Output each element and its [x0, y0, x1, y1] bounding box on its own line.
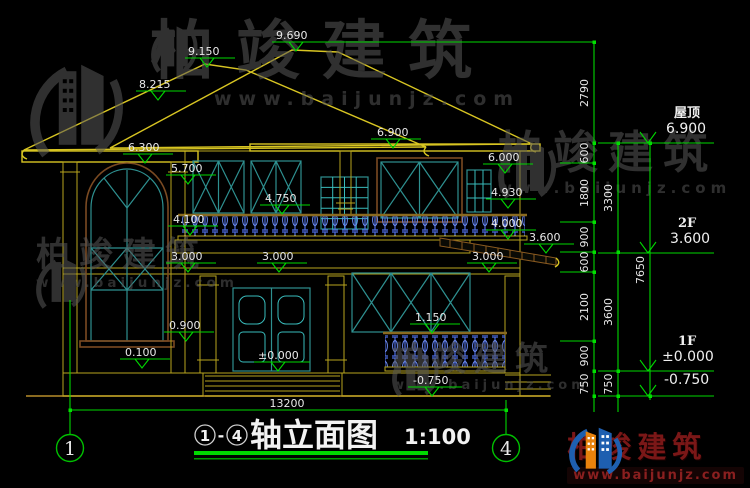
svg-text:屋顶: 屋顶 — [674, 106, 700, 121]
dim-value: 1800 — [578, 179, 591, 207]
svg-text:4.000: 4.000 — [491, 217, 523, 230]
marker-sill-1f: 0.900 — [164, 319, 214, 341]
title-scale: 1:100 — [404, 425, 471, 449]
marker-plinth-top: 0.100 — [120, 346, 170, 368]
elevation-markers: 9.690 9.150 8.215 6.900 6.300 5.700 6.00… — [120, 29, 574, 396]
dimension-lines — [70, 42, 650, 434]
svg-text:8.215: 8.215 — [139, 78, 171, 91]
svg-text:6.900: 6.900 — [377, 126, 409, 139]
svg-text:6.300: 6.300 — [128, 141, 160, 154]
title-underline-thin — [194, 458, 428, 460]
marker-window-top-2f: 6.000 — [483, 151, 533, 173]
svg-text:2F: 2F — [678, 216, 697, 231]
dim-value: 7650 — [634, 256, 647, 284]
marker-tower-cornice: 6.300 — [123, 141, 173, 163]
marker-cornice-left: 3.000 — [166, 250, 216, 272]
marker-slope-left: 8.215 — [136, 78, 186, 100]
svg-text:6.900: 6.900 — [666, 121, 706, 137]
marker-ground-mid: -0.750 — [408, 374, 462, 396]
marker-porch-eave: 3.600 — [524, 231, 574, 253]
marker-band-2f: 5.700 — [166, 162, 216, 184]
svg-text:9.150: 9.150 — [188, 45, 220, 58]
site-logo-icon — [567, 424, 623, 476]
site-logo: 柏竣建筑 www.baijunjz.com — [567, 424, 744, 484]
level-roof: 屋顶 6.900 — [598, 106, 714, 143]
cad-canvas: 柏竣建筑 www.baijunjz.com 柏竣建筑 www.baijunjz.… — [0, 0, 750, 488]
level-ground: -0.750 — [598, 372, 714, 396]
marker-eave: 6.900 — [371, 126, 421, 148]
marker-tower-band: 4.100 — [168, 213, 218, 235]
marker-ridge-left: 9.150 — [185, 45, 235, 67]
drawing-title: 1 - 4 轴立面图 1:100 — [194, 416, 471, 460]
svg-text:3.600: 3.600 — [529, 231, 561, 244]
dim-value-width: 13200 — [270, 397, 305, 410]
svg-text:0.900: 0.900 — [169, 319, 201, 332]
svg-text:9.690: 9.690 — [276, 29, 308, 42]
svg-text:±0.000: ±0.000 — [662, 349, 714, 365]
dim-value: 3300 — [602, 184, 615, 212]
dim-value: 900 — [578, 227, 591, 248]
svg-text:6.000: 6.000 — [488, 151, 520, 164]
marker-porch-rail: 1.150 — [410, 311, 460, 333]
marker-cornice-right: 3.000 — [467, 250, 517, 272]
svg-text:3.000: 3.000 — [171, 250, 203, 263]
title-axis-end: 4 — [232, 427, 242, 445]
svg-text:-0.750: -0.750 — [664, 372, 709, 388]
axis-bubble-1: 1 — [57, 435, 84, 462]
title-text: 轴立面图 — [250, 416, 378, 454]
dim-value: 750 — [578, 374, 591, 395]
svg-text:±0.000: ±0.000 — [258, 349, 299, 362]
marker-corbel-2f: 4.930 — [486, 186, 536, 208]
dim-value: 750 — [602, 374, 615, 395]
marker-rail-top: 4.750 — [260, 192, 310, 214]
svg-text:1.150: 1.150 — [415, 311, 447, 324]
svg-text:3.600: 3.600 — [670, 231, 710, 247]
dim-value: 2100 — [578, 293, 591, 321]
annotations: 2790 600 1800 900 600 2100 900 750 3300 … — [0, 0, 750, 488]
svg-text:4: 4 — [500, 438, 512, 460]
svg-text:3.000: 3.000 — [472, 250, 504, 263]
title-separator: - — [218, 426, 225, 445]
axis-bubble-4: 4 — [493, 435, 520, 462]
marker-peak: 9.690 — [272, 29, 326, 51]
svg-text:1F: 1F — [678, 334, 697, 349]
svg-text:-0.750: -0.750 — [413, 374, 448, 387]
svg-text:0.100: 0.100 — [125, 346, 157, 359]
marker-cornice-mid: 3.000 — [257, 250, 307, 272]
svg-text:4.750: 4.750 — [265, 192, 297, 205]
dim-value: 2790 — [578, 79, 591, 107]
title-axis-start: 1 — [200, 427, 210, 445]
svg-text:4.100: 4.100 — [173, 213, 205, 226]
marker-floor-1f: ±0.000 — [254, 349, 310, 371]
dim-value: 600 — [578, 252, 591, 273]
title-underline — [194, 451, 428, 455]
level-1f: 1F ±0.000 — [598, 334, 714, 371]
level-markers: 屋顶 6.900 2F 3.600 1F ±0.000 -0.750 — [598, 106, 714, 396]
dim-value: 900 — [578, 346, 591, 367]
svg-text:4.930: 4.930 — [491, 186, 523, 199]
svg-text:1: 1 — [64, 438, 76, 460]
dim-value: 3600 — [602, 298, 615, 326]
level-2f: 2F 3.600 — [598, 216, 714, 253]
dimension-values: 2790 600 1800 900 600 2100 900 750 3300 … — [270, 79, 648, 410]
dim-value: 600 — [578, 143, 591, 164]
svg-text:3.000: 3.000 — [262, 250, 294, 263]
svg-text:5.700: 5.700 — [171, 162, 203, 175]
